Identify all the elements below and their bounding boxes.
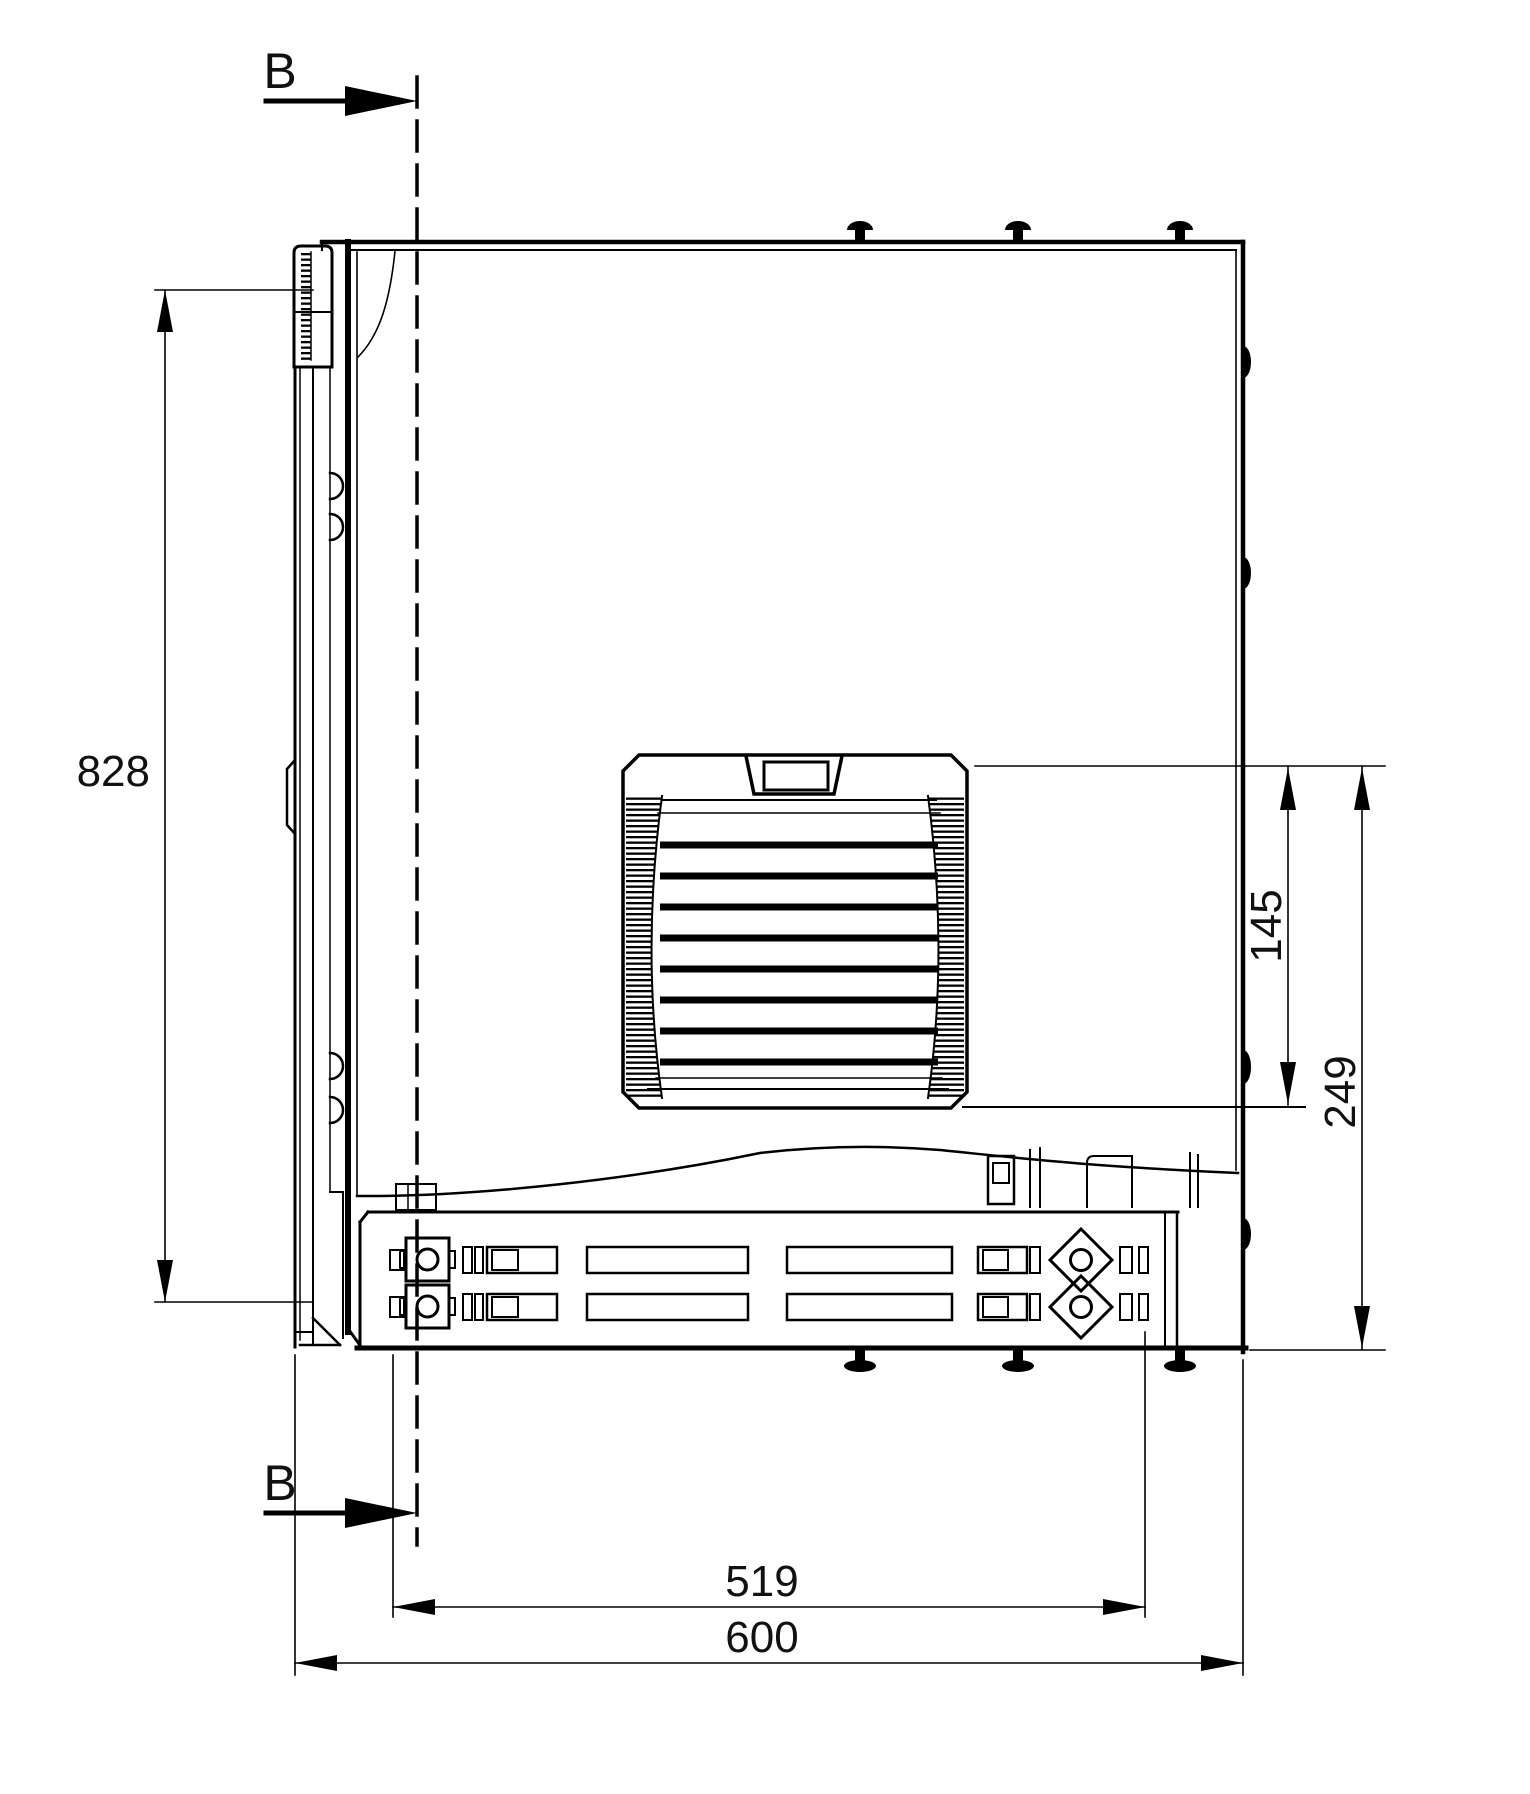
hinge-pin-bump <box>1243 1219 1250 1249</box>
dimension-door-height: 828 <box>77 290 313 1302</box>
dimension-base-depth: 519 <box>393 1332 1145 1617</box>
dimension-vent-height-label: 145 <box>1242 889 1291 962</box>
cable-cover-zone <box>357 1147 1238 1210</box>
hinge-bump <box>330 1053 343 1079</box>
dimension-overall-depth-label: 600 <box>725 1613 798 1662</box>
dimension-door-height-label: 828 <box>77 747 150 796</box>
dimension-vent-bottom-offset-label: 249 <box>1316 1055 1365 1128</box>
screw-icon <box>1167 221 1193 242</box>
cage-nut <box>406 1285 449 1328</box>
dimension-vent-bottom-offset: 249 <box>1250 766 1385 1350</box>
hinge-pin-bump <box>1243 347 1250 377</box>
screw-icon <box>847 221 873 242</box>
technical-drawing: B B <box>0 0 1530 1794</box>
foot-icon <box>844 1349 876 1372</box>
section-marker-b-top-label: B <box>263 43 296 99</box>
vent-slot-row <box>390 1229 1148 1291</box>
section-marker-b-bottom: B <box>263 1455 417 1528</box>
grille-slats <box>660 842 938 1066</box>
screw-icon <box>1005 221 1031 242</box>
foot-icon <box>1002 1349 1034 1372</box>
foot-icon <box>1164 1349 1196 1372</box>
top-screws <box>847 221 1193 242</box>
dimension-vent-height: 145 <box>975 766 1385 1105</box>
dimension-overall-depth: 600 <box>295 1355 1243 1675</box>
cage-nut <box>406 1238 449 1281</box>
hinge-pin-bump <box>1243 558 1250 588</box>
section-marker-b-bottom-label: B <box>263 1455 296 1511</box>
section-arrow-bottom <box>345 1498 417 1528</box>
section-marker-b-top: B <box>263 43 417 116</box>
drawing-page: B B <box>0 0 1530 1794</box>
fan-grille <box>623 755 1305 1108</box>
dimension-base-depth-label: 519 <box>725 1557 798 1606</box>
hinge-bump <box>330 1097 343 1123</box>
hinge-bump <box>330 514 343 540</box>
cable-cover-curve <box>357 1147 1238 1196</box>
cabinet-body <box>322 242 1250 1352</box>
feet <box>844 1349 1196 1372</box>
base-vent-bracket <box>357 1212 1246 1348</box>
hinge-bump <box>330 473 343 499</box>
door <box>287 246 343 1347</box>
cage-nut-rotated <box>1050 1276 1112 1338</box>
cage-nut-rotated <box>1050 1229 1112 1291</box>
vent-slot-row <box>390 1276 1148 1338</box>
hinge-pin-bump <box>1243 1051 1250 1083</box>
section-arrow-top <box>345 86 417 116</box>
